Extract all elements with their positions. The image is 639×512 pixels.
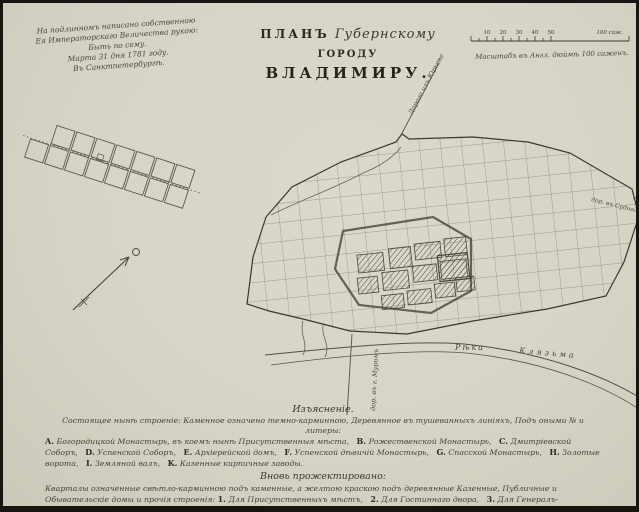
- legend-item-label: Для Торговыхъ лавокъ,: [298, 506, 395, 512]
- legend-item: D. Успенской Соборъ,: [85, 448, 176, 457]
- river-label-word1: Рѣка: [454, 343, 485, 352]
- scale-bar: Масштабъ въ Англ. дюймѣ 100 саженъ.: [469, 29, 635, 59]
- legend-existing-items: A. Богородицкой Монастырь, въ коемъ нынѣ…: [45, 436, 601, 469]
- legend-item-key: 1.: [218, 494, 226, 504]
- legend-item-key: 5.: [288, 505, 296, 512]
- legend-item-key: E.: [183, 447, 192, 457]
- legend-item-key: 3.: [487, 494, 495, 504]
- map-sheet: Рѣка Клязьма Дорога изъ Юрьева дор. въ г…: [0, 0, 639, 512]
- legend-item: 1. Для Присутственныхъ мѣстъ,: [218, 495, 363, 504]
- legend-item-key: 7.: [570, 505, 578, 512]
- legend-projected-items: Кварталы означенные свѣтло-карминною под…: [45, 483, 601, 512]
- legend-item-label: Успенской дѣвичій Монастырь,: [295, 448, 430, 457]
- legend-item-key: 6.: [403, 505, 411, 512]
- title-word-gubernskomu: Губернскому: [335, 27, 436, 42]
- legend: Изъясненіе. Состоящее нынѣ строеніе: Кам…: [45, 404, 601, 512]
- legend-item-key: C.: [499, 436, 508, 446]
- legend-item: K. Казенные кирпичные заводы.: [168, 459, 304, 468]
- legend-heading-projected: Вновь прожектировано:: [45, 471, 601, 482]
- legend-item: B. Рожественской Монастырь,: [357, 437, 492, 446]
- title-city-name: ВЛАДИМИРУ.: [228, 64, 468, 82]
- legend-item-label: Богородицкой Монастырь, въ коемъ нынѣ Пр…: [56, 437, 349, 446]
- legend-item-key: H.: [549, 447, 559, 457]
- legend-item-label: Рожественской Монастырь,: [369, 437, 492, 446]
- legend-item-key: D.: [85, 447, 94, 457]
- legend-item-key: 2.: [370, 494, 378, 504]
- sloboda-blocks: [17, 117, 206, 213]
- legend-item-label: Для Гостиннаго двора,: [381, 495, 479, 504]
- legend-item: E. Архіерейской домъ,: [183, 448, 276, 457]
- legend-item-label: Успенской Соборъ,: [97, 448, 176, 457]
- legend-item-key: B.: [357, 436, 367, 446]
- city-outline: [247, 134, 639, 334]
- legend-item-key: G.: [437, 447, 446, 457]
- legend-intro: Состоящее нынѣ строеніе: Каменное означе…: [45, 416, 601, 436]
- title-line1: ПЛАНЪ Губернскому ГОРОДУ: [228, 23, 468, 61]
- title-word-gorodu: ГОРОДУ: [318, 49, 379, 60]
- legend-item: 5. Для Торговыхъ лавокъ,: [288, 506, 395, 512]
- legend-item: 7. Ямская Слобода.: [45, 506, 579, 512]
- legend-item-label: Спасской Монастырь,: [448, 448, 542, 457]
- legend-item-label: Для Присутственныхъ мѣстъ,: [228, 495, 362, 504]
- legend-item: G. Спасской Монастырь,: [437, 448, 542, 457]
- legend-item: 4. Для Губернаторскаго дома,: [151, 506, 280, 512]
- title-word-plan: ПЛАНЪ: [260, 27, 330, 41]
- legend-item-label: Архіерейской домъ,: [195, 448, 277, 457]
- compass-icon: [73, 249, 140, 311]
- river-klyazma: [265, 321, 639, 409]
- legend-item-label: Казенные кирпичные заводы.: [180, 459, 303, 468]
- legend-item-key: K.: [168, 458, 178, 468]
- legend-item: 6. Валъ и ровъ въ ограниченіи Города,: [403, 506, 563, 512]
- legend-item-label: Валъ и ровъ въ ограниченіи Города,: [413, 506, 562, 512]
- legend-item-label: Земляной валъ,: [95, 459, 160, 468]
- legend-item-key: 4.: [151, 505, 159, 512]
- river-label-word2: Клязьма: [518, 346, 577, 360]
- legend-item: 2. Для Гостиннаго двора,: [370, 495, 479, 504]
- legend-item: I. Земляной валъ,: [86, 459, 160, 468]
- road-to-murom-label: дор. въ г. Муромъ: [369, 348, 380, 411]
- legend-item-key: F.: [284, 447, 292, 457]
- map-title: ПЛАНЪ Губернскому ГОРОДУ ВЛАДИМИРУ.: [228, 23, 468, 82]
- legend-item-key: A.: [45, 436, 54, 446]
- legend-heading: Изъясненіе.: [45, 404, 601, 415]
- legend-item-key: I.: [86, 458, 93, 468]
- legend-item: F. Успенской дѣвичій Монастырь,: [284, 448, 429, 457]
- legend-item: A. Богородицкой Монастырь, въ коемъ нынѣ…: [45, 437, 349, 446]
- legend-item-label: Для Губернаторскаго дома,: [162, 506, 280, 512]
- road-to-murom: [347, 334, 352, 415]
